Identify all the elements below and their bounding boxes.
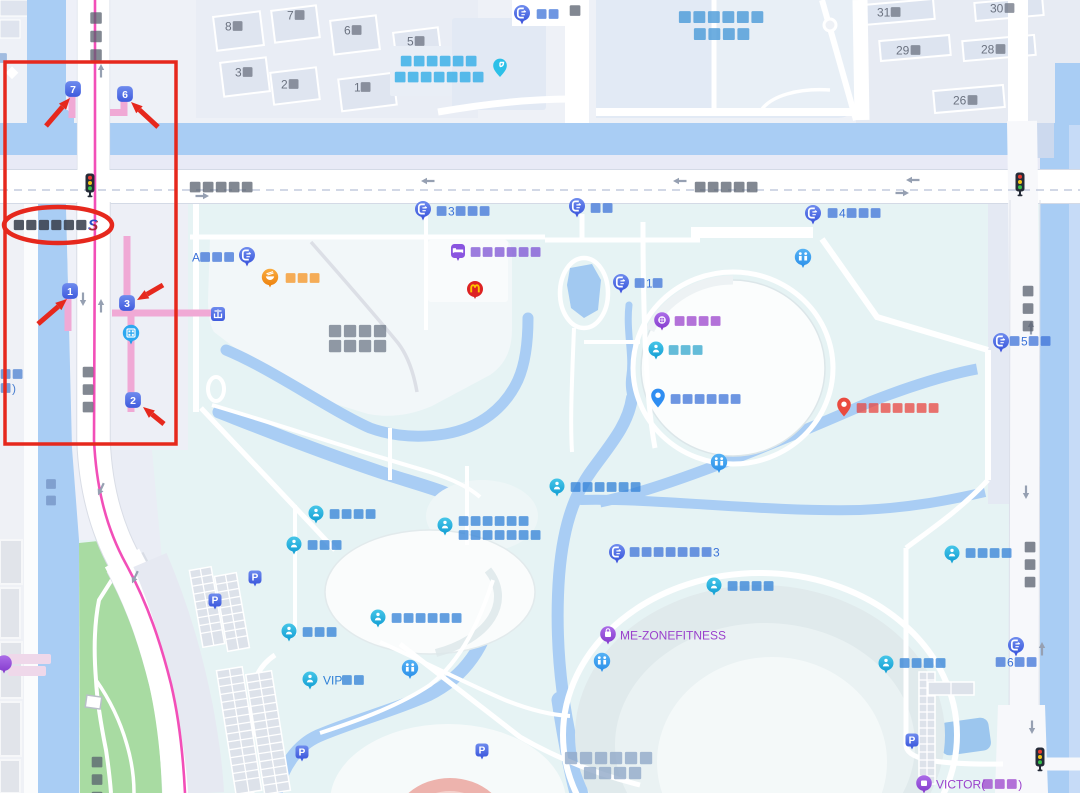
svg-text:1: 1 bbox=[354, 80, 361, 94]
svg-text:8: 8 bbox=[225, 19, 232, 33]
svg-text:31: 31 bbox=[877, 5, 891, 19]
svg-text:3: 3 bbox=[448, 204, 455, 218]
svg-text:1: 1 bbox=[646, 276, 653, 290]
svg-text:2: 2 bbox=[130, 395, 136, 407]
svg-text:3: 3 bbox=[713, 545, 720, 559]
svg-text:VIP: VIP bbox=[323, 673, 342, 687]
svg-text:): ) bbox=[12, 381, 16, 395]
svg-text:4: 4 bbox=[839, 206, 846, 220]
svg-text:6: 6 bbox=[344, 23, 351, 37]
svg-text:2: 2 bbox=[281, 77, 288, 91]
svg-text:3: 3 bbox=[124, 298, 130, 310]
svg-text:3: 3 bbox=[235, 65, 242, 79]
svg-text:VICTOR(: VICTOR( bbox=[936, 777, 985, 791]
svg-text:5: 5 bbox=[1021, 334, 1028, 348]
svg-text:7: 7 bbox=[287, 8, 294, 22]
svg-text:5: 5 bbox=[407, 34, 414, 48]
svg-text:26: 26 bbox=[953, 93, 967, 107]
svg-text:6: 6 bbox=[122, 89, 128, 101]
svg-text:A: A bbox=[192, 250, 200, 264]
svg-text:7: 7 bbox=[70, 84, 76, 96]
svg-text:6: 6 bbox=[1007, 655, 1014, 669]
svg-text:28: 28 bbox=[981, 42, 995, 56]
svg-text:29: 29 bbox=[896, 43, 910, 57]
svg-text:): ) bbox=[1018, 777, 1022, 791]
svg-text:1: 1 bbox=[67, 286, 73, 298]
svg-text:30: 30 bbox=[990, 1, 1004, 15]
svg-text:ME-ZONEFITNESS: ME-ZONEFITNESS bbox=[620, 628, 726, 642]
